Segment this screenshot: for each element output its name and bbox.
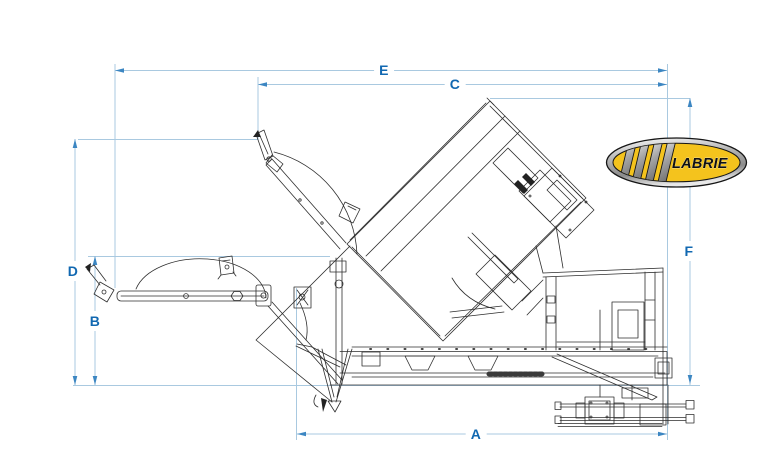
dimension-label-e: E bbox=[374, 60, 394, 80]
dimension-label-c: C bbox=[445, 74, 466, 94]
lowered-arm bbox=[85, 256, 311, 308]
dimension-arrowheads bbox=[73, 68, 693, 436]
rear-body bbox=[522, 268, 663, 352]
labrie-logo-text: LABRIE bbox=[672, 156, 729, 172]
labrie-logo: LABRIE bbox=[607, 138, 747, 187]
lift-tower bbox=[256, 246, 350, 402]
chassis-frame bbox=[296, 344, 667, 412]
dimension-lines bbox=[73, 64, 700, 440]
arm-swing-arc-lower bbox=[136, 259, 266, 298]
raised-arm bbox=[253, 130, 360, 254]
dimension-label-a: A bbox=[466, 424, 487, 444]
tilted-body bbox=[347, 98, 594, 341]
pump-assembly bbox=[555, 358, 694, 427]
dimension-label-f: F bbox=[679, 241, 698, 261]
dimension-label-d: D bbox=[63, 261, 84, 281]
dimension-diagram: LABRIE E C D B F A bbox=[0, 0, 768, 461]
dimension-label-b: B bbox=[85, 311, 106, 331]
